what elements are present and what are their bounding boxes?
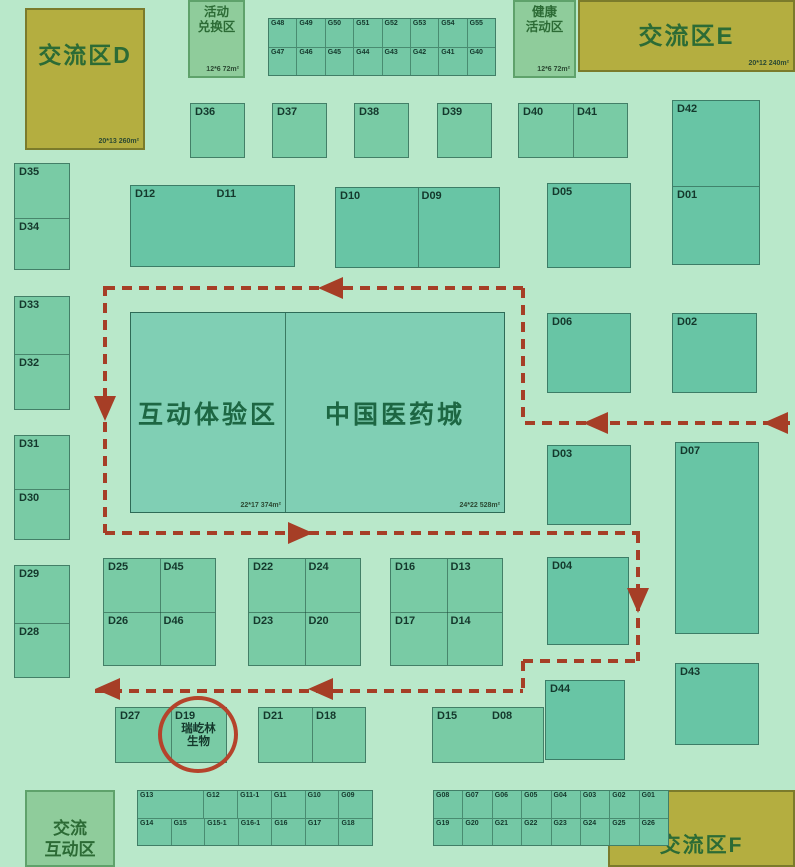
booth-G06: G06 — [493, 791, 522, 818]
route-segment-elbow — [523, 659, 640, 663]
booth-label: D41 — [577, 106, 597, 118]
booth-G19: G19 — [434, 819, 463, 846]
interactive-experience-zone: 互动体验区 22*17 374m² — [131, 313, 286, 512]
booth-label: D25 — [108, 561, 128, 573]
booth-G08: G08 — [434, 791, 463, 818]
booth-label: G51 — [356, 20, 369, 27]
booth-D38: D38 — [354, 103, 409, 158]
booth-G44: G44 — [354, 48, 382, 76]
booth-label: G13 — [140, 792, 153, 799]
booth-D05: D05 — [547, 183, 631, 268]
booth-G22: G22 — [522, 819, 551, 846]
booth-label: D36 — [195, 106, 215, 118]
booth-D02: D02 — [672, 313, 757, 393]
booth-label: D26 — [108, 615, 128, 627]
booth-G25: G25 — [610, 819, 639, 846]
route-segment-elbow-down — [521, 661, 525, 691]
booth-G13: G13 — [138, 791, 204, 818]
booth-label: D20 — [309, 615, 329, 627]
booth-label: G03 — [583, 792, 596, 799]
booth-G20: G20 — [463, 819, 492, 846]
booth-G03: G03 — [581, 791, 610, 818]
booth-label: G16-1 — [241, 820, 260, 827]
booth-label: G52 — [385, 20, 398, 27]
booth-G10: G10 — [306, 791, 340, 818]
route-arrow-left-icon — [95, 678, 120, 700]
booth-G12: G12 — [204, 791, 238, 818]
booth-label: G05 — [524, 792, 537, 799]
booth-G40: G40 — [468, 48, 495, 76]
booth-label: D38 — [359, 106, 379, 118]
booth-D31-D30: D31D30 — [14, 435, 70, 540]
zone-e-area: 交流区E 20*12 240m² — [578, 0, 795, 72]
health-activity-line2: 活动区 — [515, 20, 574, 35]
booth-G54: G54 — [439, 19, 467, 47]
booth-label: G26 — [642, 820, 655, 827]
booth-G11-1: G11-1 — [238, 791, 272, 818]
booth-G46: G46 — [297, 48, 325, 76]
booth-G23: G23 — [552, 819, 581, 846]
booth-label: G20 — [465, 820, 478, 827]
booth-G15: G15 — [172, 819, 206, 846]
g-grid-top: G48G49G50G51G52G53G54G55G47G46G45G44G43G… — [268, 18, 496, 76]
booth-G05: G05 — [522, 791, 551, 818]
health-activity-size: 12*6 72m² — [537, 66, 570, 73]
booth-label: G10 — [308, 792, 321, 799]
booth-label: D27 — [120, 710, 140, 722]
booth-label: D15 — [437, 710, 457, 722]
booth-G50: G50 — [326, 19, 354, 47]
route-segment-branch-east — [525, 421, 795, 425]
booth-label: D35 — [19, 166, 39, 178]
booth-label: G45 — [328, 49, 341, 56]
route-segment-right — [521, 288, 525, 423]
activity-exchange-area: 活动 兑换区 12*6 72m² — [188, 0, 245, 78]
route-arrow-down-icon — [94, 396, 116, 421]
booth-label: D32 — [19, 357, 39, 369]
booth-label: D14 — [451, 615, 471, 627]
booth-G55: G55 — [468, 19, 495, 47]
booth-label: G15 — [174, 820, 187, 827]
booth-label: D16 — [395, 561, 415, 573]
booth-label: D43 — [680, 666, 700, 678]
booth-label: G22 — [524, 820, 537, 827]
booth-G52: G52 — [383, 19, 411, 47]
exchange-interactive-line1: 交流 — [27, 818, 113, 839]
booth-label: G06 — [495, 792, 508, 799]
booth-G24: G24 — [581, 819, 610, 846]
china-med-city-zone: 中国医药城 24*22 528m² — [286, 313, 504, 512]
booth-G07: G07 — [463, 791, 492, 818]
booth-block-D25: D25D45D26D46 — [103, 558, 216, 666]
route-arrow-down-icon — [627, 588, 649, 613]
booth-label: D31 — [19, 438, 39, 450]
booth-G51: G51 — [354, 19, 382, 47]
booth-label: G07 — [465, 792, 478, 799]
booth-label: D29 — [19, 568, 39, 580]
booth-label: G19 — [436, 820, 449, 827]
g-grid-row: G08G07G06G05G04G03G02G01 — [434, 791, 668, 819]
exchange-interactive-area: 交流 互动区 — [25, 790, 115, 867]
highlight-circle — [158, 696, 238, 773]
booth-D43: D43 — [675, 663, 759, 745]
booth-label: G02 — [612, 792, 625, 799]
booth-label: D18 — [316, 710, 336, 722]
booth-D15-D08: D15D08 — [432, 707, 544, 763]
booth-G49: G49 — [297, 19, 325, 47]
route-segment-top — [105, 286, 525, 290]
g-grid-row: G48G49G50G51G52G53G54G55 — [269, 19, 495, 48]
booth-label: D23 — [253, 615, 273, 627]
booth-G26: G26 — [640, 819, 668, 846]
booth-label: D22 — [253, 561, 273, 573]
exhibition-floor-plan: 交流区D 20*13 260m² 活动 兑换区 12*6 72m² 健康 活动区… — [0, 0, 795, 867]
booth-label: G18 — [341, 820, 354, 827]
booth-G45: G45 — [326, 48, 354, 76]
booth-D40-D41: D40D41 — [518, 103, 628, 158]
interactive-experience-size: 22*17 374m² — [241, 502, 281, 509]
booth-label: D03 — [552, 448, 572, 460]
booth-G16: G16 — [272, 819, 306, 846]
booth-label: D37 — [277, 106, 297, 118]
booth-label: D04 — [552, 560, 572, 572]
booth-label: D40 — [523, 106, 543, 118]
booth-label: D28 — [19, 626, 39, 638]
route-segment-bottom — [105, 531, 640, 535]
booth-D35-D34: D35D34 — [14, 163, 70, 270]
booth-label: G44 — [356, 49, 369, 56]
booth-label: G47 — [271, 49, 284, 56]
booth-label: G50 — [328, 20, 341, 27]
booth-D42-D01: D42D01 — [672, 100, 760, 265]
booth-label: G01 — [642, 792, 655, 799]
activity-exchange-line2: 兑换区 — [190, 20, 243, 35]
booth-G17: G17 — [306, 819, 340, 846]
booth-label: G11-1 — [240, 792, 259, 799]
booth-label: D02 — [677, 316, 697, 328]
booth-D06: D06 — [547, 313, 631, 393]
booth-label: G42 — [413, 49, 426, 56]
booth-G14: G14 — [138, 819, 172, 846]
booth-label: D39 — [442, 106, 462, 118]
booth-label: G54 — [441, 20, 454, 27]
booth-label: D45 — [164, 561, 184, 573]
booth-D39: D39 — [437, 103, 492, 158]
booth-label: G48 — [271, 20, 284, 27]
booth-G41: G41 — [439, 48, 467, 76]
g-grid-bottom-left: G13G12G11-1G11G10G09G14G15G15-1G16-1G16G… — [137, 790, 373, 846]
booth-D29-D28: D29D28 — [14, 565, 70, 678]
health-activity-line1: 健康 — [515, 5, 574, 20]
booth-label: G25 — [612, 820, 625, 827]
booth-label: D21 — [263, 710, 283, 722]
booth-label: D13 — [451, 561, 471, 573]
g-grid-row: G13G12G11-1G11G10G09 — [138, 791, 372, 819]
booth-label: G21 — [495, 820, 508, 827]
booth-label: D34 — [19, 221, 39, 233]
g-grid-row: G47G46G45G44G43G42G41G40 — [269, 48, 495, 76]
booth-G43: G43 — [383, 48, 411, 76]
g-grid-row: G19G20G21G22G23G24G25G26 — [434, 819, 668, 846]
booth-label: G41 — [441, 49, 454, 56]
booth-D03: D03 — [547, 445, 631, 525]
booth-G15-1: G15-1 — [205, 819, 239, 846]
booth-label: G43 — [385, 49, 398, 56]
booth-D04: D04 — [547, 557, 629, 645]
booth-label: D05 — [552, 186, 572, 198]
booth-label: G11 — [274, 792, 287, 799]
booth-label: D06 — [552, 316, 572, 328]
booth-label: D30 — [19, 492, 39, 504]
booth-D10-D09: D10D09 — [335, 187, 500, 268]
booth-label: G15-1 — [207, 820, 226, 827]
booth-D07: D07 — [675, 442, 759, 634]
booth-G48: G48 — [269, 19, 297, 47]
activity-exchange-size: 12*6 72m² — [206, 66, 239, 73]
booth-D33-D32: D33D32 — [14, 296, 70, 410]
g-grid-row: G14G15G15-1G16-1G16G17G18 — [138, 819, 372, 846]
booth-label: G23 — [554, 820, 567, 827]
booth-G42: G42 — [411, 48, 439, 76]
booth-G11: G11 — [272, 791, 306, 818]
booth-label: G46 — [299, 49, 312, 56]
booth-label: G53 — [413, 20, 426, 27]
booth-D36: D36 — [190, 103, 245, 158]
booth-label: D46 — [164, 615, 184, 627]
booth-label: G55 — [470, 20, 483, 27]
booth-label: G08 — [436, 792, 449, 799]
booth-G21: G21 — [493, 819, 522, 846]
booth-G01: G01 — [640, 791, 668, 818]
booth-label: D44 — [550, 683, 570, 695]
booth-label: D07 — [680, 445, 700, 457]
central-hall: 互动体验区 22*17 374m² 中国医药城 24*22 528m² — [130, 312, 505, 513]
booth-label: D24 — [309, 561, 329, 573]
booth-D44: D44 — [545, 680, 625, 760]
booth-label: G12 — [206, 792, 219, 799]
zone-e-label: 交流区E — [580, 2, 793, 51]
activity-exchange-line1: 活动 — [190, 5, 243, 20]
g-grid-bottom-right: G08G07G06G05G04G03G02G01G19G20G21G22G23G… — [433, 790, 669, 846]
zone-d-label: 交流区D — [27, 10, 143, 70]
booth-D21-D18: D21D18 — [258, 707, 366, 763]
booth-label: G49 — [299, 20, 312, 27]
booth-G18: G18 — [339, 819, 372, 846]
booth-G47: G47 — [269, 48, 297, 76]
booth-label: D09 — [422, 190, 442, 202]
route-arrow-right-icon — [288, 522, 313, 544]
booth-G53: G53 — [411, 19, 439, 47]
route-arrow-left-icon — [318, 277, 343, 299]
route-arrow-left-icon — [308, 678, 333, 700]
booth-label: D17 — [395, 615, 415, 627]
booth-G04: G04 — [552, 791, 581, 818]
booth-G16-1: G16-1 — [239, 819, 273, 846]
china-med-city-size: 24*22 528m² — [460, 502, 500, 509]
booth-label: D11 — [217, 188, 237, 200]
booth-label: D08 — [492, 710, 512, 722]
booth-D12-D11: D12D11 — [130, 185, 295, 267]
route-arrow-left-icon — [763, 412, 788, 434]
china-med-city-label: 中国医药城 — [325, 395, 465, 431]
booth-label: G14 — [140, 820, 153, 827]
booth-label: G40 — [470, 49, 483, 56]
booth-G02: G02 — [610, 791, 639, 818]
zone-e-size: 20*12 240m² — [749, 60, 789, 67]
booth-label: D01 — [677, 189, 697, 201]
booth-label: D12 — [135, 188, 155, 200]
booth-label: G09 — [341, 792, 354, 799]
booth-label: G16 — [274, 820, 287, 827]
booth-G09: G09 — [339, 791, 372, 818]
zone-d-size: 20*13 260m² — [99, 138, 139, 145]
booth-label: G24 — [583, 820, 596, 827]
booth-label: D42 — [677, 103, 697, 115]
booth-block-D16: D16D13D17D14 — [390, 558, 503, 666]
booth-label: D33 — [19, 299, 39, 311]
booth-label: G04 — [554, 792, 567, 799]
health-activity-area: 健康 活动区 12*6 72m² — [513, 0, 576, 78]
interactive-experience-label: 互动体验区 — [138, 395, 278, 431]
zone-d-area: 交流区D 20*13 260m² — [25, 8, 145, 150]
booth-block-D22: D22D24D23D20 — [248, 558, 361, 666]
route-arrow-left-icon — [583, 412, 608, 434]
booth-D37: D37 — [272, 103, 327, 158]
exchange-interactive-line2: 互动区 — [27, 839, 113, 860]
booth-label: D10 — [340, 190, 360, 202]
booth-label: G17 — [308, 820, 321, 827]
